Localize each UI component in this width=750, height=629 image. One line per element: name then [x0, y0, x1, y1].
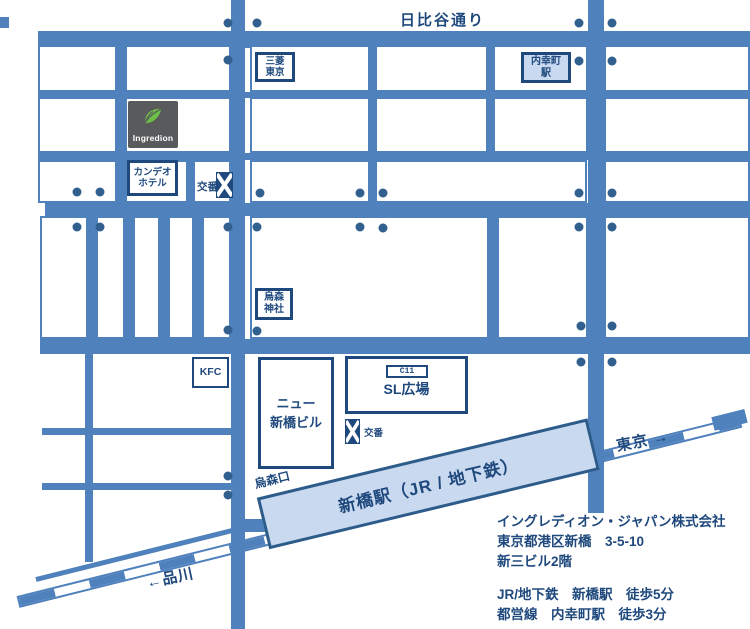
leaf-icon [142, 106, 164, 131]
sl-square-code-badge: C11 [386, 365, 428, 378]
road-segment [40, 339, 750, 354]
city-block [40, 216, 88, 339]
city-block [202, 216, 231, 339]
signal-dot [379, 224, 388, 233]
kfc-box: KFC [192, 357, 229, 388]
city-block [250, 160, 370, 203]
city-block [96, 216, 125, 339]
signal-dot [577, 358, 586, 367]
koban-upper-x-icon [216, 172, 233, 203]
koban-lower-label: 交番 [364, 425, 383, 439]
city-block [497, 216, 588, 339]
signal-dot [608, 189, 617, 198]
signal-dot [96, 223, 105, 232]
road-segment [489, 216, 497, 339]
city-block [38, 160, 117, 203]
road-segment [194, 216, 202, 339]
signal-dot [256, 189, 265, 198]
signal-dot [577, 322, 586, 331]
signal-dot [575, 223, 584, 232]
address-line-2: 新三ビル2階 [497, 552, 726, 572]
signal-dot [96, 188, 105, 197]
road-segment [42, 428, 235, 435]
ingredion-logo-text: Ingredion [133, 133, 174, 143]
city-block [375, 160, 587, 203]
karasumori-shrine-box: 烏森 神社 [255, 288, 293, 320]
road-segment [85, 354, 93, 562]
sl-square-label: SL広場 [348, 381, 465, 398]
road-segment [125, 216, 133, 339]
signal-dot [253, 19, 262, 28]
city-block [604, 160, 750, 203]
signal-dot [608, 358, 617, 367]
road-segment [0, 17, 9, 28]
signal-dot [224, 19, 233, 28]
city-block [168, 216, 194, 339]
signal-dot [253, 223, 262, 232]
new-shimbashi-building-box: ニュー 新橋ビル [258, 357, 334, 469]
signal-dot [224, 326, 233, 335]
access-line-1: JR/地下鉄 新橋駅 徒歩5分 [497, 585, 726, 605]
signal-dot [253, 327, 262, 336]
city-block [250, 97, 370, 153]
koban-lower-x-icon [345, 419, 360, 449]
signal-dot [356, 223, 365, 232]
signal-dot [379, 189, 388, 198]
signal-dot [73, 223, 82, 232]
signal-dot [73, 188, 82, 197]
signal-dot [224, 491, 233, 500]
address-line-1: 東京都港区新橋 3-5-10 [497, 532, 726, 552]
uchisaiwaicho-station-box: 内幸町 駅 [521, 52, 571, 83]
road-segment [42, 483, 235, 490]
road-segment [45, 203, 750, 216]
signal-dot [356, 189, 365, 198]
signal-dot [575, 57, 584, 66]
signal-dot [608, 57, 617, 66]
city-block [38, 45, 117, 92]
road-segment [117, 45, 125, 203]
mitsubishi-tokyo-box: 三菱 東京 [255, 52, 295, 82]
city-block [604, 216, 750, 339]
city-block [133, 216, 160, 339]
city-block [250, 216, 489, 339]
signal-dot [608, 223, 617, 232]
company-info: イングレディオン・ジャパン株式会社 東京都港区新橋 3-5-10 新三ビル2階 … [497, 512, 726, 625]
city-block [125, 45, 231, 92]
ingredion-logo: Ingredion [128, 101, 178, 148]
signal-dot [224, 56, 233, 65]
city-block [375, 97, 488, 153]
road-segment [88, 216, 96, 339]
hibiya-dori-label: 日比谷通り [400, 9, 485, 30]
access-map: 新橋駅（JR / 地下鉄） 日比谷通り 三菱 東京 内幸町 駅 カンデオ ホテル… [0, 0, 750, 629]
city-block [38, 97, 117, 153]
road-segment [38, 153, 750, 160]
city-block [493, 97, 588, 153]
city-block [604, 97, 750, 153]
signal-dot [575, 19, 584, 28]
sl-square-box: C11 SL広場 [345, 356, 468, 414]
company-name: イングレディオン・ジャパン株式会社 [497, 512, 726, 532]
signal-dot [224, 223, 233, 232]
shimbashi-station-label: 新橋駅（JR / 地下鉄） [335, 450, 521, 517]
road-segment [160, 216, 168, 339]
signal-dot [575, 189, 584, 198]
karasumori-exit-label: 烏森口 [252, 467, 291, 492]
koban-upper-label: 交番 [197, 179, 218, 194]
access-line-2: 都営線 内幸町駅 徒歩3分 [497, 605, 726, 625]
signal-dot [608, 322, 617, 331]
city-block [604, 45, 750, 92]
candeo-hotel-box: カンデオ ホテル [127, 160, 178, 196]
signal-dot [224, 472, 233, 481]
signal-dot [608, 19, 617, 28]
city-block [375, 45, 488, 92]
